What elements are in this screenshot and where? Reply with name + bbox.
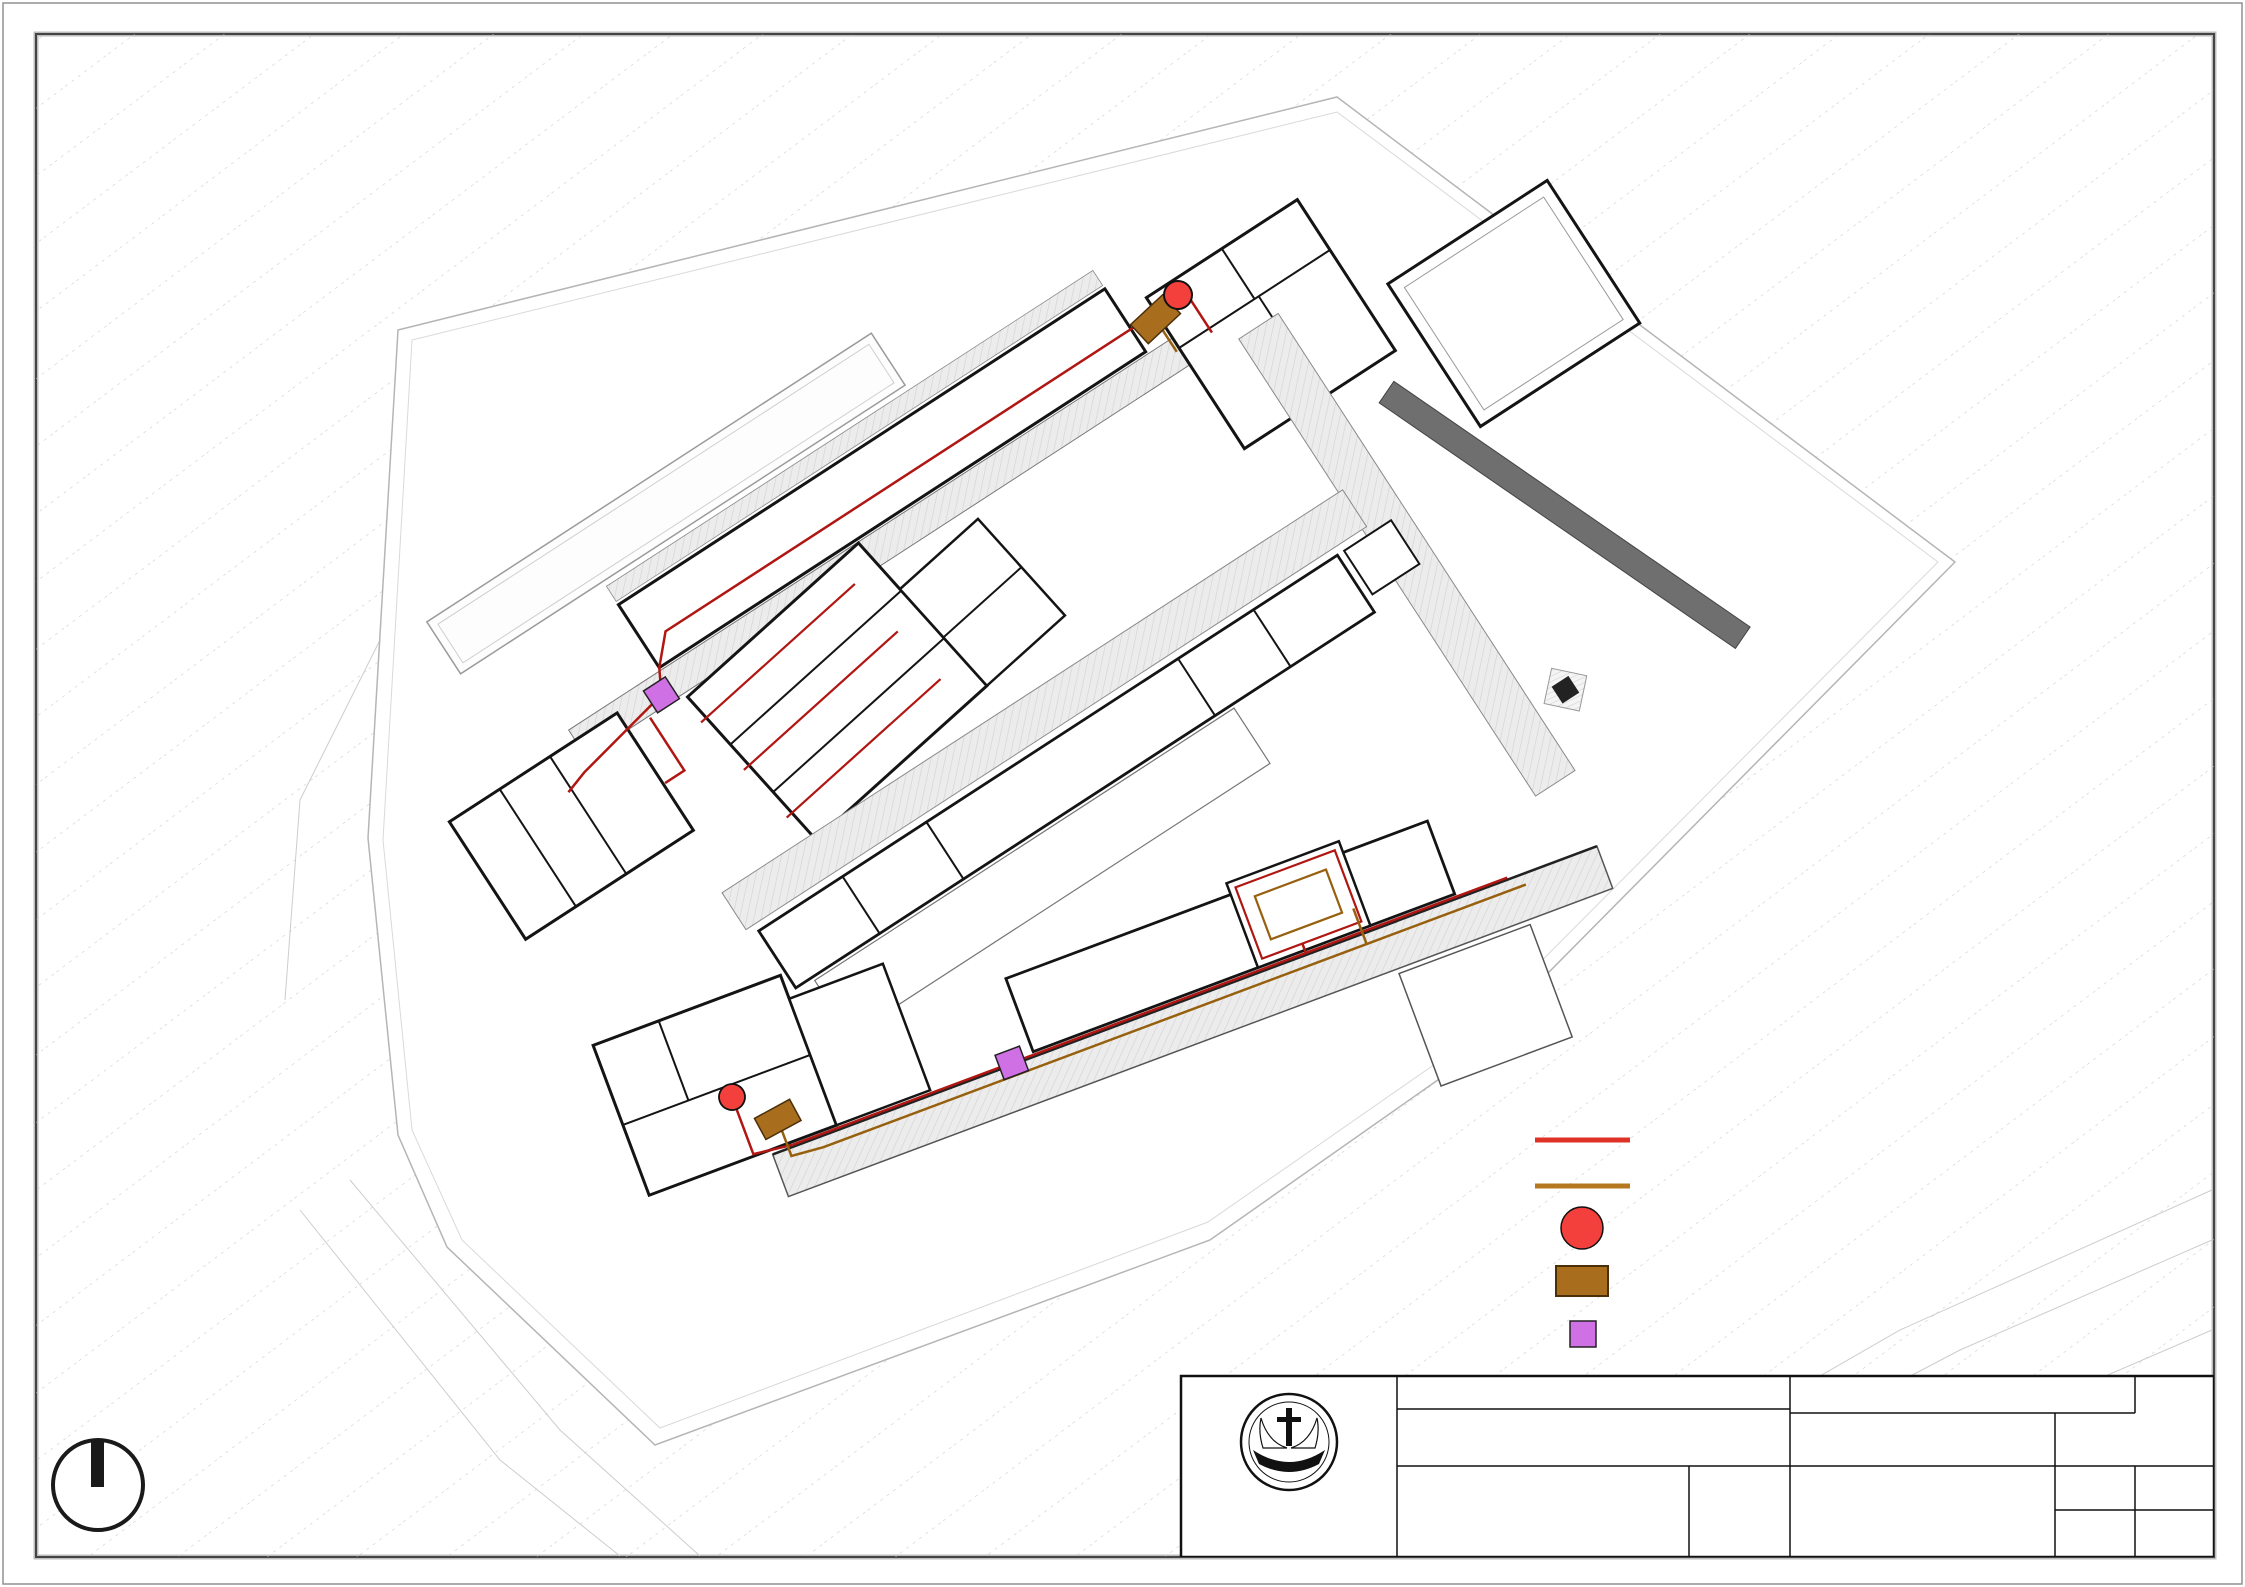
legend-bak-kontrol-icon — [1570, 1321, 1596, 1347]
legend-sumur-resapan-icon — [1561, 1207, 1603, 1249]
site-plan-svg — [0, 0, 2245, 1587]
north-arrow — [53, 1439, 143, 1530]
legend-septic-tank-icon — [1556, 1266, 1608, 1296]
north-arrow-needle — [91, 1439, 104, 1487]
drawing-sheet — [0, 0, 2245, 1587]
